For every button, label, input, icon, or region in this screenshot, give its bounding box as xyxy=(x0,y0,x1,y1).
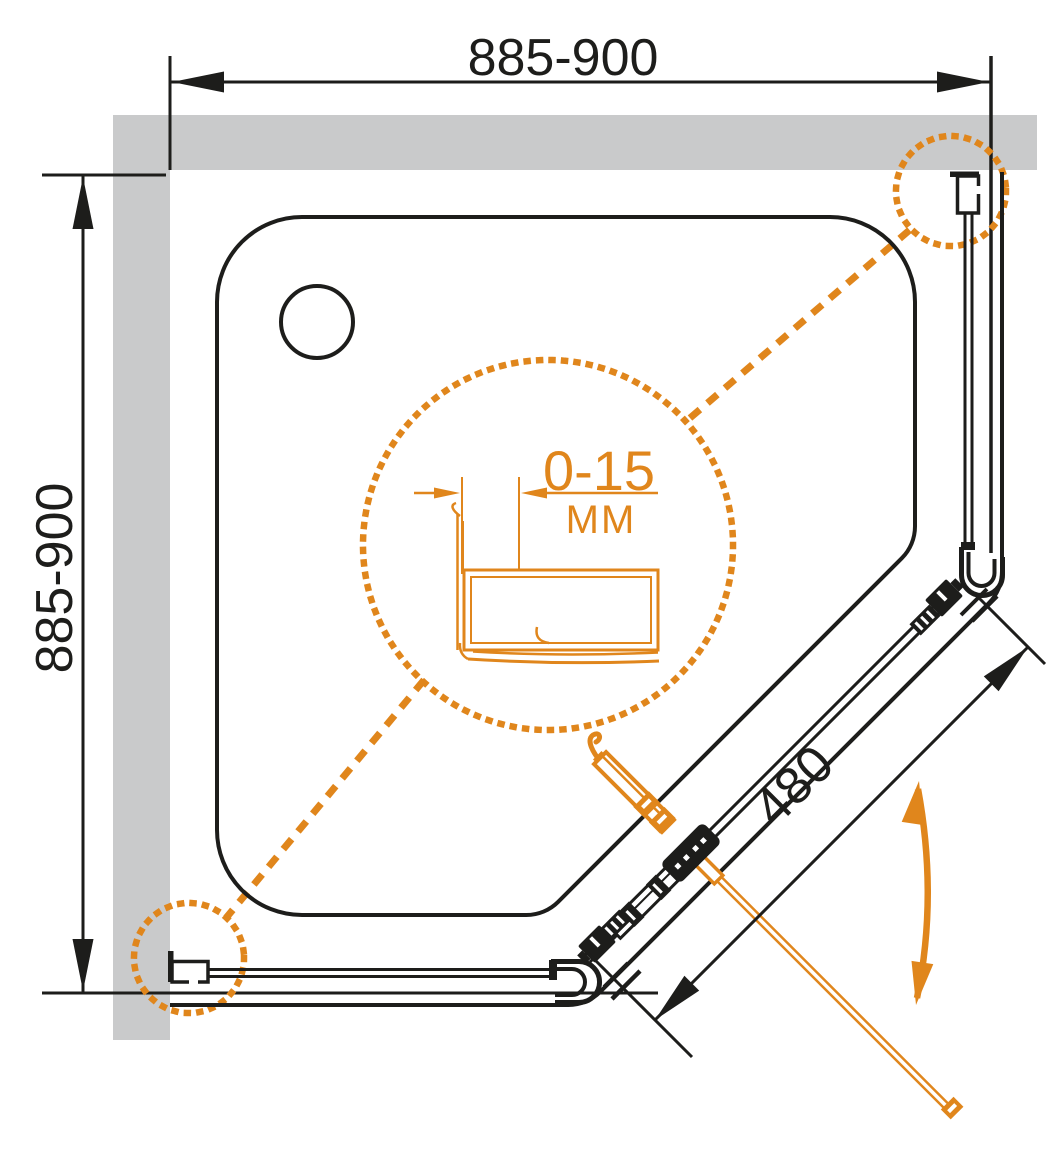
wall-top xyxy=(113,115,1037,170)
dim-left-arrow-top xyxy=(73,177,94,229)
swing-arrow-up xyxy=(902,781,924,825)
dim-top-arrow-left xyxy=(172,72,224,93)
adjustment-unit-label: ММ xyxy=(566,498,637,542)
callout-connector-top-right xyxy=(690,228,912,418)
wall-profile-bottom-left xyxy=(168,951,208,984)
dim-top-arrow-right xyxy=(937,72,989,93)
swing-arrow-down xyxy=(912,961,934,1005)
wall-profile-top-right xyxy=(950,172,981,214)
dim-left-label: 885-900 xyxy=(26,483,84,674)
hinge-bottom xyxy=(549,909,640,1002)
detail-arrow-right xyxy=(434,488,460,499)
tray-outer-edge xyxy=(170,172,1002,1005)
hinge-top xyxy=(909,542,1002,636)
door-swing-arrow xyxy=(902,781,934,1005)
shower-enclosure-drawing: 885-900 885-900 xyxy=(0,0,1063,1150)
dim-left-arrow-bottom xyxy=(73,939,94,991)
adjustment-range-label: 0-15 xyxy=(543,439,655,502)
drain-circle xyxy=(281,286,353,358)
dim-top-label: 885-900 xyxy=(468,29,659,87)
adjustment-detail: 0-15 ММ xyxy=(414,439,659,663)
callouts xyxy=(134,136,1006,1013)
dim-door-label: 480 xyxy=(743,735,845,837)
wall-left xyxy=(113,170,170,1040)
fixed-panels xyxy=(208,212,972,977)
detail-circle-center xyxy=(363,360,733,730)
shower-tray xyxy=(170,172,1002,1005)
callout-connector-bottom-left xyxy=(226,680,424,918)
